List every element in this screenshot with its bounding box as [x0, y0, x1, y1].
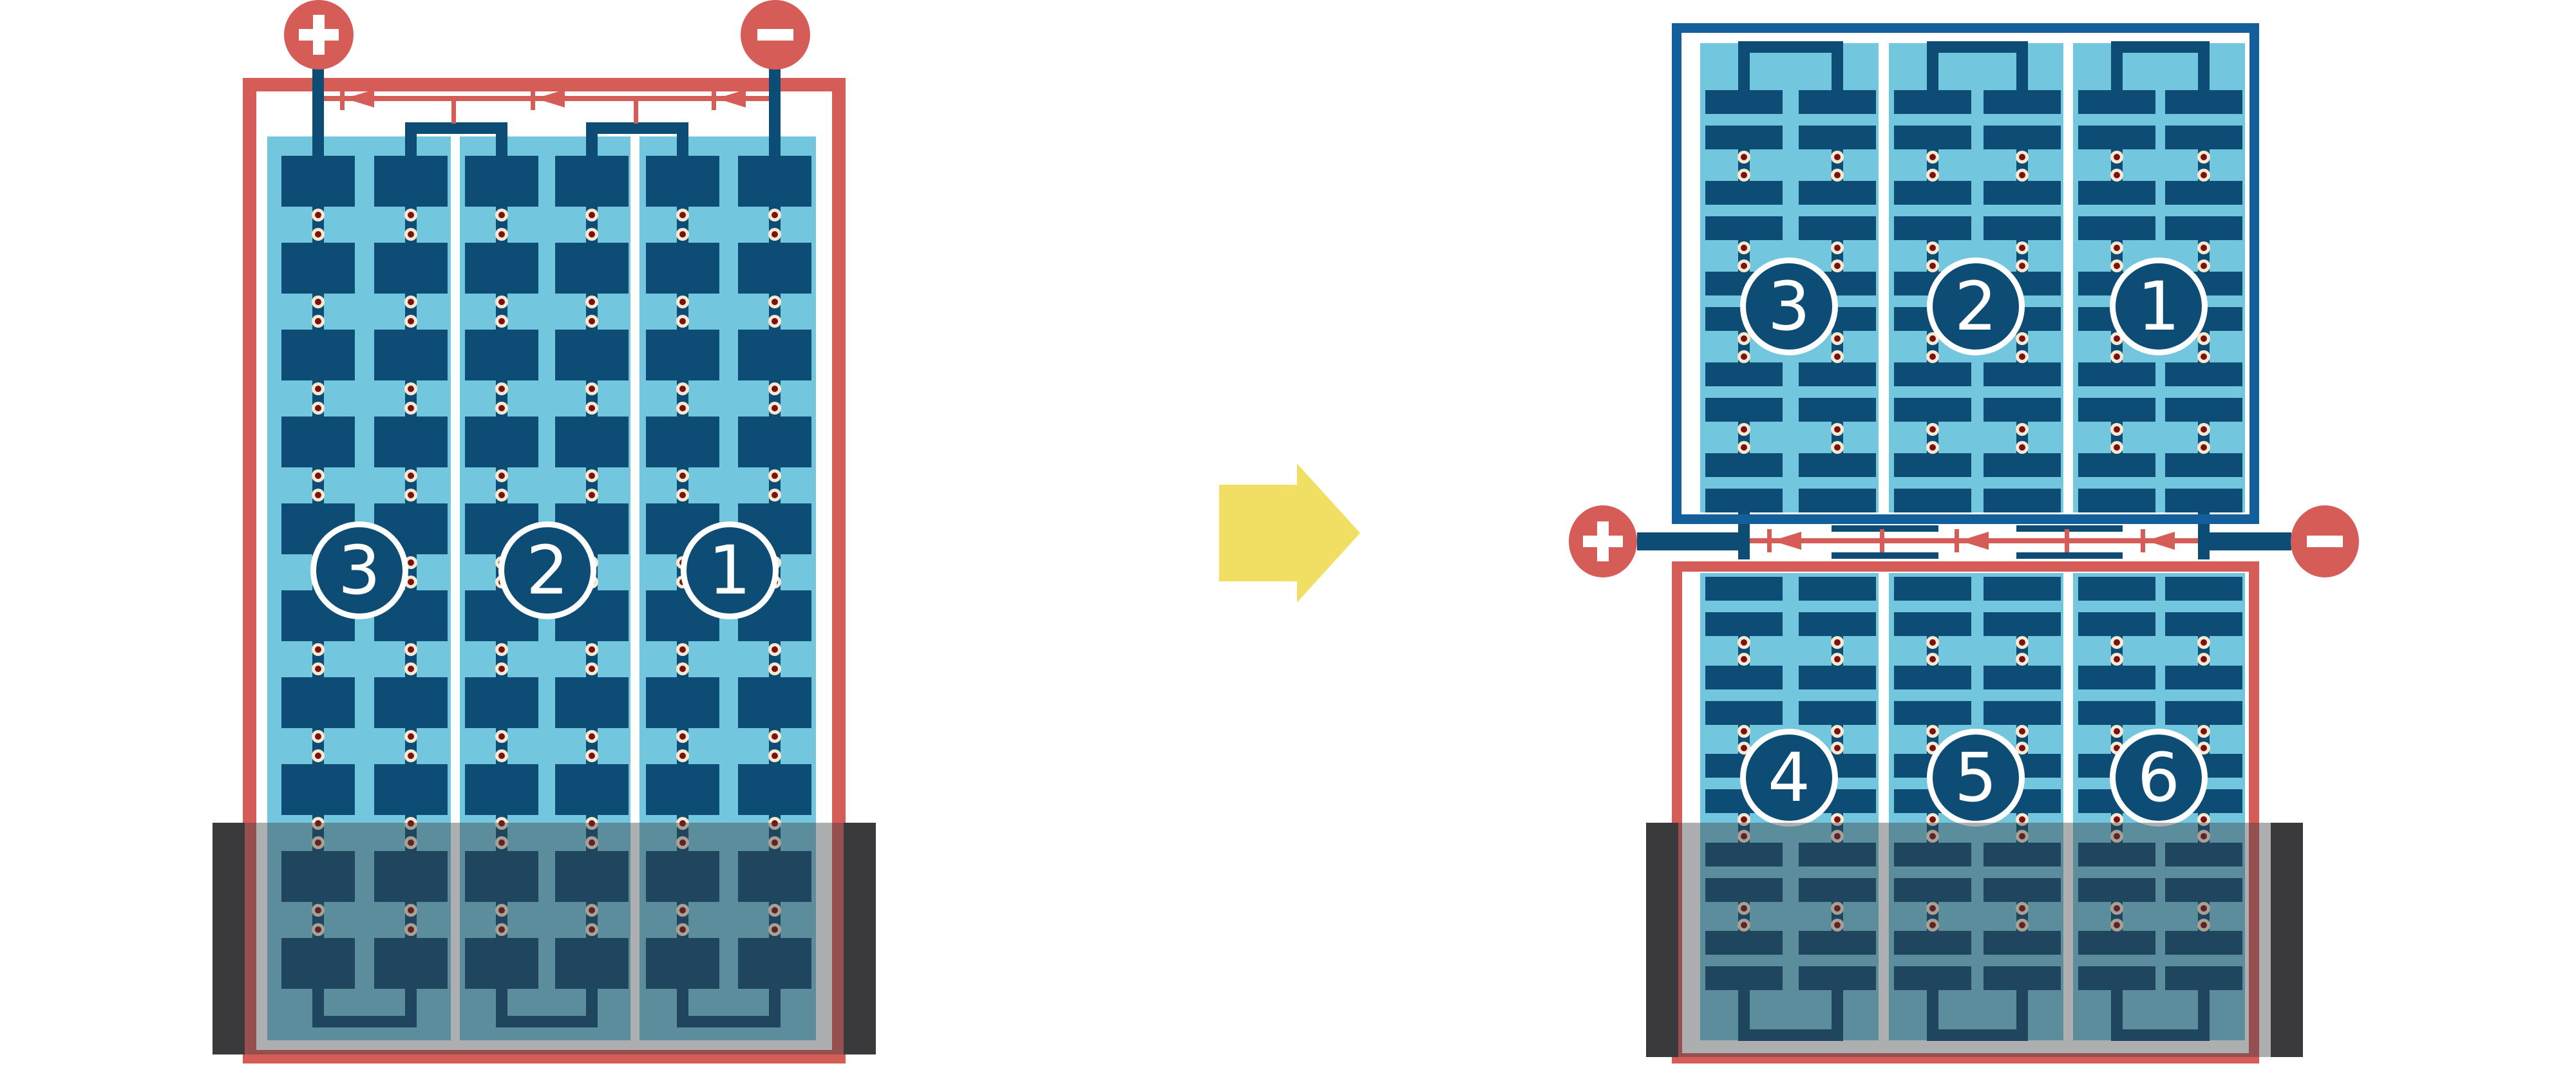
- terminal-post: [1637, 532, 1738, 550]
- case-side-bar: [213, 823, 245, 1054]
- case-side-bar: [2271, 823, 2303, 1057]
- cell-number-badge: 6: [2110, 729, 2208, 827]
- plus-icon: [1583, 536, 1623, 547]
- transform-arrow-head: [1297, 464, 1360, 603]
- current-arrowhead-icon: [1960, 532, 1989, 550]
- wire-tick: [1880, 529, 1884, 552]
- cell-number-badge: 2: [498, 521, 596, 619]
- inter-unit-tab: [1832, 525, 1938, 532]
- terminal-post: [312, 63, 324, 157]
- current-arrowhead-icon: [2146, 532, 2175, 550]
- plus-icon: [299, 29, 339, 41]
- cell-number-badge: 2: [1927, 258, 2025, 355]
- wire-tick: [1767, 529, 1772, 552]
- case-front-overlay: [1678, 823, 2271, 1057]
- cell-number-badge: 3: [1740, 258, 1838, 355]
- minus-icon: [2307, 536, 2343, 547]
- wire-tick: [2065, 529, 2069, 552]
- battery-cells-diagram: 321 342516: [0, 0, 2576, 1068]
- terminal-post: [769, 63, 781, 157]
- cell-number-badge: 3: [310, 521, 408, 619]
- cell-number-badge: 4: [1740, 729, 1838, 827]
- current-arrowhead-icon: [1772, 532, 1801, 550]
- transform-arrow-shaft: [1219, 485, 1297, 581]
- inter-unit-tab: [2016, 525, 2123, 532]
- cell-number-badge: 1: [2110, 258, 2208, 355]
- inter-unit-tab: [1832, 552, 1938, 559]
- wire-tick: [1955, 529, 1959, 552]
- case-front-overlay: [245, 823, 844, 1054]
- cell-number-badge: 1: [681, 521, 779, 619]
- terminal-post: [2210, 532, 2291, 550]
- cell-number-badge: 5: [1927, 729, 2025, 827]
- inter-unit-tab: [2016, 552, 2123, 559]
- minus-icon: [757, 29, 793, 41]
- case-side-bar: [844, 823, 876, 1054]
- case-side-bar: [1646, 823, 1678, 1057]
- wire-tick: [2141, 529, 2145, 552]
